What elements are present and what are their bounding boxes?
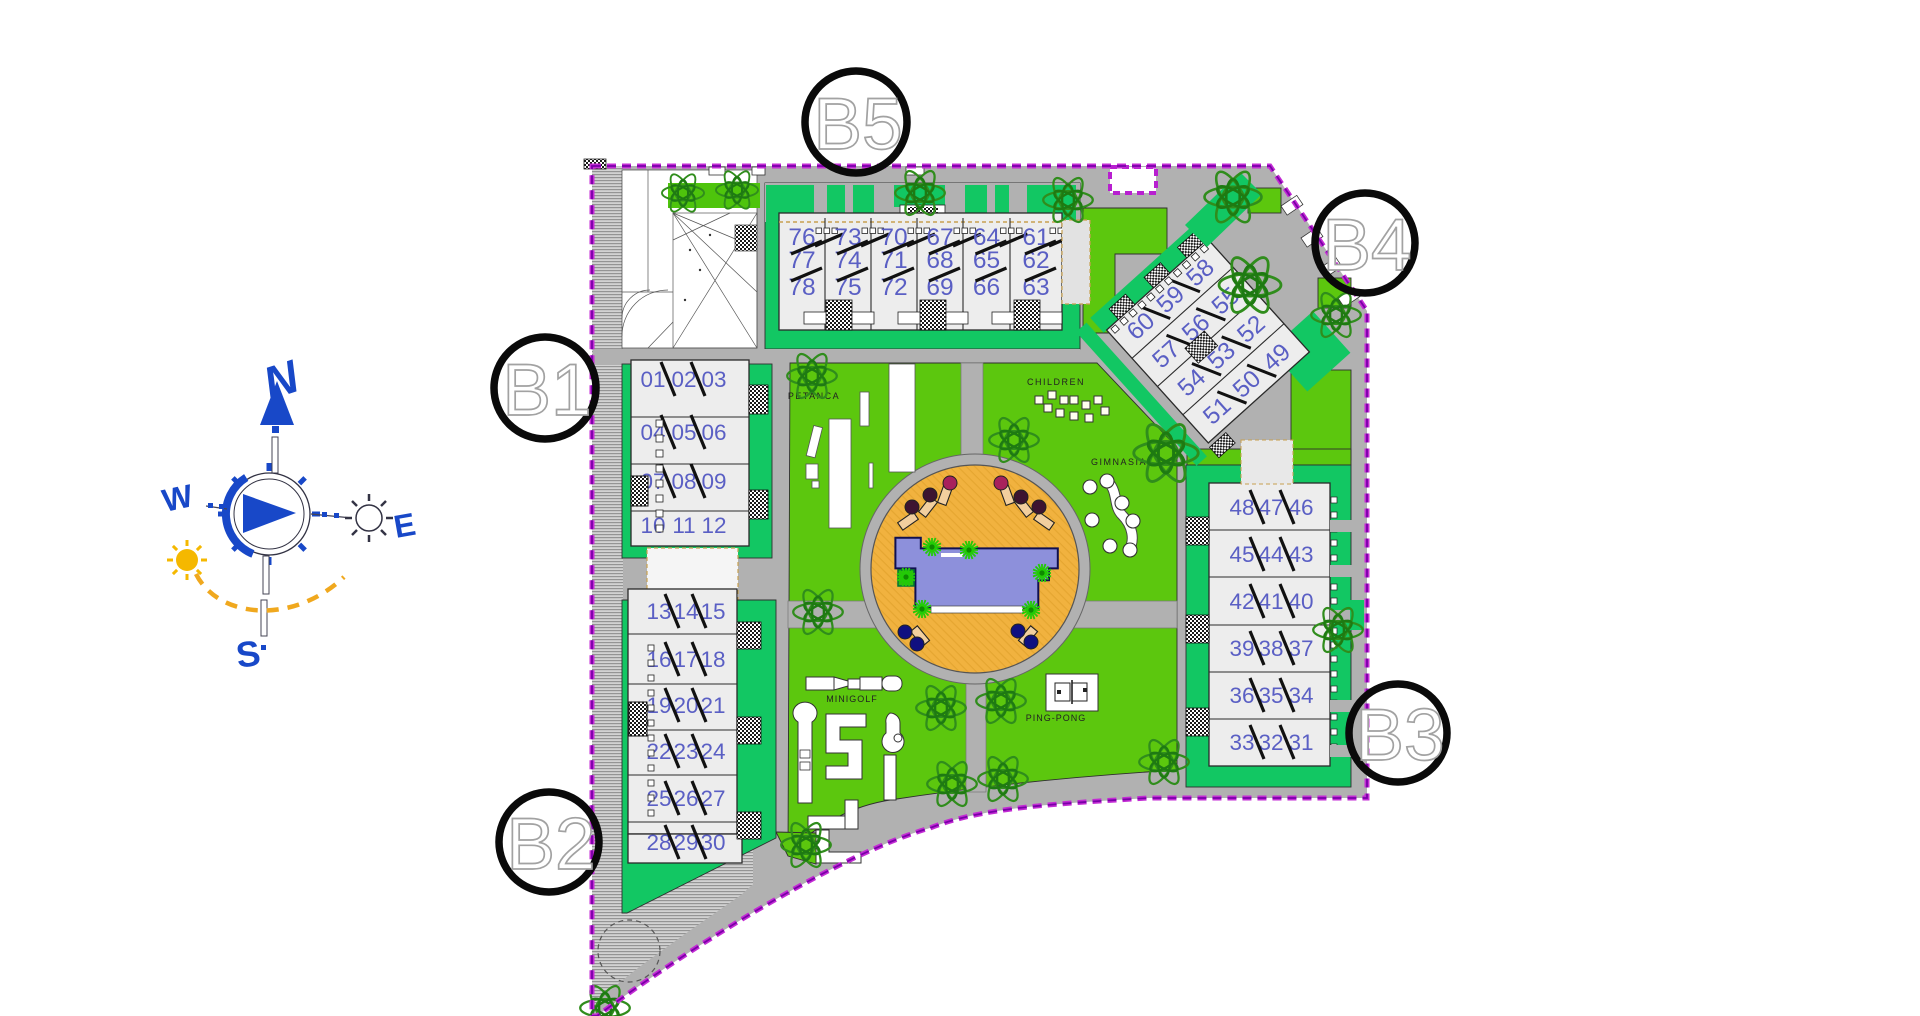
svg-text:01: 01 [640, 367, 665, 392]
svg-text:B1: B1 [502, 350, 591, 431]
svg-text:PING-PONG: PING-PONG [1026, 713, 1087, 723]
svg-text:08: 08 [671, 469, 696, 494]
svg-text:48: 48 [1229, 495, 1254, 520]
svg-text:B5: B5 [813, 84, 902, 165]
svg-text:CHILDREN: CHILDREN [1027, 377, 1085, 387]
svg-text:B4: B4 [1322, 205, 1411, 286]
svg-text:W: W [159, 477, 197, 519]
svg-text:B2: B2 [506, 804, 595, 885]
svg-text:39: 39 [1229, 636, 1254, 661]
svg-text:12: 12 [701, 513, 726, 538]
svg-text:MINIGOLF: MINIGOLF [826, 694, 878, 704]
svg-text:03: 03 [701, 367, 726, 392]
svg-text:05: 05 [671, 420, 696, 445]
svg-text:02: 02 [671, 367, 696, 392]
svg-text:33: 33 [1229, 730, 1254, 755]
svg-text:36: 36 [1229, 683, 1254, 708]
svg-text:S: S [233, 632, 262, 676]
svg-text:E: E [391, 506, 418, 545]
svg-text:42: 42 [1229, 589, 1254, 614]
svg-text:45: 45 [1229, 542, 1254, 567]
svg-text:B3: B3 [1355, 695, 1444, 776]
svg-text:11: 11 [672, 513, 695, 538]
svg-text:06: 06 [701, 420, 726, 445]
svg-text:09: 09 [701, 469, 726, 494]
